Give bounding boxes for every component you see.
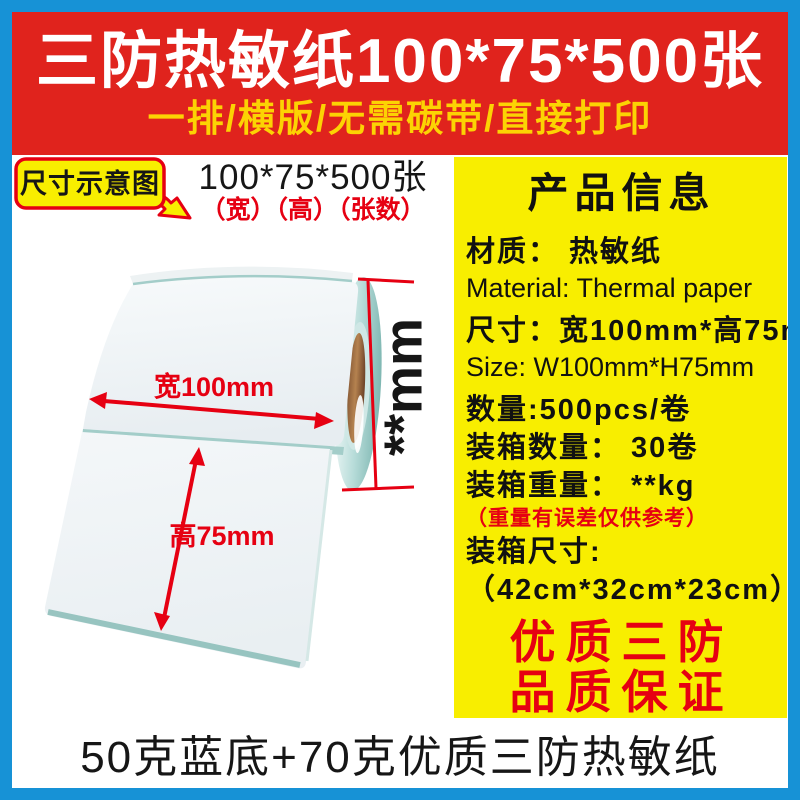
banner-subtitle: 一排/横版/无需碳带/直接打印: [148, 98, 653, 140]
panel-title: 产品信息: [466, 167, 777, 219]
header-banner: 三防热敏纸100*75*500张 一排/横版/无需碳带/直接打印: [12, 12, 788, 155]
size-callout-bubble: 尺寸示意图: [16, 159, 190, 218]
thickness-dimension-label: **mm: [373, 318, 433, 456]
info-row-material-en: Material: Thermal paper: [466, 271, 777, 305]
label-roll-photo: [45, 267, 387, 669]
quality-badge-line2: 品质保证: [466, 667, 777, 717]
info-row-box-size-label: 装箱尺寸:: [466, 533, 777, 571]
info-row-material-cn: 材质： 热敏纸: [466, 233, 777, 271]
info-row-quantity: 数量:500pcs/卷: [466, 391, 777, 429]
banner-title: 三防热敏纸100*75*500张: [36, 28, 764, 96]
product-listing-image: 三防热敏纸100*75*500张 一排/横版/无需碳带/直接打印 尺寸示意图: [0, 0, 800, 800]
info-row-box-size-value: （42cm*32cm*23cm）: [466, 571, 777, 609]
spec-heading: 100*75*500张: [199, 158, 428, 197]
info-row-size-en: Size: W100mm*H75mm: [466, 350, 777, 384]
width-dimension-label: 宽100mm: [154, 371, 274, 402]
callout-bubble-label: 尺寸示意图: [20, 168, 160, 199]
spec-heading-note: （宽）（高）（张数）: [200, 195, 425, 224]
height-dimension-label: 高75mm: [169, 520, 274, 551]
info-row-rolls-per-box: 装箱数量： 30卷: [466, 429, 777, 467]
label-roll-diagram: 尺寸示意图 100*75*500张 （宽）（高）（张数）: [12, 155, 454, 705]
footer-strip: 50克蓝底+70克优质三防热敏纸: [12, 718, 788, 788]
product-info-panel: 产品信息 材质： 热敏纸 Material: Thermal paper 尺寸：…: [454, 157, 787, 720]
footer-text: 50克蓝底+70克优质三防热敏纸: [80, 721, 720, 785]
info-row-weight-note: （重量有误差仅供参考）: [466, 505, 777, 533]
quality-badge-line1: 优质三防: [466, 617, 777, 667]
info-row-box-weight: 装箱重量： **kg: [466, 467, 777, 505]
info-row-size-cn: 尺寸：宽100mm*高75mm: [466, 312, 777, 350]
